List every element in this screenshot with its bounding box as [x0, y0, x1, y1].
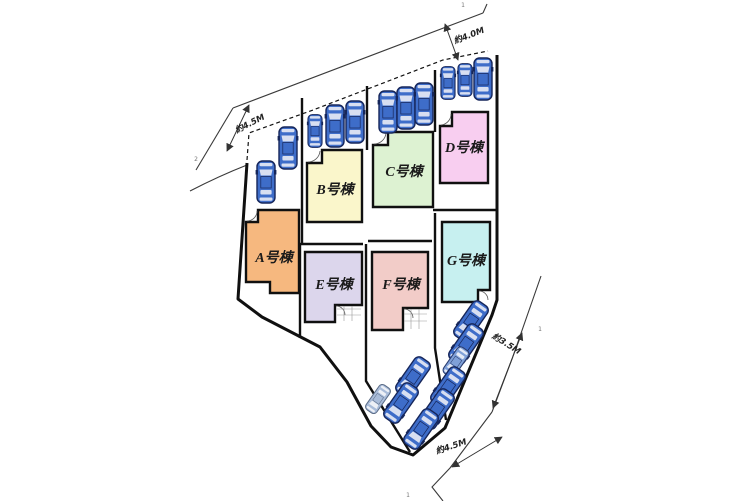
building-c-label: C号棟	[385, 163, 425, 180]
site-plan-canvas: A号棟 B号棟 C号棟 D号棟 E号棟 F号棟 G号棟 約4.0M 約4.5M …	[0, 0, 740, 501]
dimension-left: 約4.5M	[227, 105, 267, 151]
car-icon	[378, 91, 399, 133]
site-plan: A号棟 B号棟 C号棟 D号棟 E号棟 F号棟 G号棟 約4.0M 約4.5M …	[0, 0, 740, 501]
porch-grid	[337, 306, 361, 321]
door-arc	[374, 133, 386, 144]
car-icon	[325, 105, 346, 147]
car-icon	[396, 87, 417, 129]
dimension-label-bottom: 約4.5M	[433, 436, 468, 457]
car-icon	[278, 127, 299, 169]
dimension-right: 約3.5M	[489, 330, 523, 408]
car-icon	[440, 67, 456, 100]
survey-mark: 1	[461, 2, 465, 9]
survey-mark: 2	[194, 156, 198, 163]
door-arc	[247, 211, 257, 221]
car-icon	[457, 64, 473, 97]
door-arc	[308, 151, 320, 162]
car-icon	[345, 101, 366, 143]
road-edge-left	[196, 108, 233, 170]
car-icon	[307, 115, 323, 148]
door-arc	[441, 114, 451, 125]
door-arc	[336, 306, 345, 315]
dimension-label-top: 約4.0M	[451, 25, 486, 47]
building-a-label: A号棟	[254, 249, 295, 266]
car-icon	[256, 161, 277, 203]
survey-mark: 1	[538, 326, 542, 333]
road-edge-left-lower	[190, 165, 247, 191]
building-e-label: E号棟	[314, 276, 355, 293]
road-edge-bottom-right	[432, 412, 492, 501]
dimension-label-left: 約4.5M	[232, 111, 267, 136]
building-f-label: F号棟	[381, 276, 422, 293]
dimension-bottom: 約4.5M	[433, 436, 502, 467]
car-icon	[473, 58, 494, 100]
door-arc	[479, 291, 488, 300]
survey-mark: 1	[406, 492, 410, 499]
porch-grid	[404, 309, 427, 329]
building-b-label: B号棟	[315, 181, 356, 198]
car-icon	[400, 406, 441, 452]
car-icon	[414, 83, 435, 125]
dimension-top: 約4.0M	[445, 24, 487, 60]
building-g-label: G号棟	[447, 252, 488, 269]
building-d-label: D号棟	[444, 139, 486, 156]
door-arc	[404, 309, 413, 318]
